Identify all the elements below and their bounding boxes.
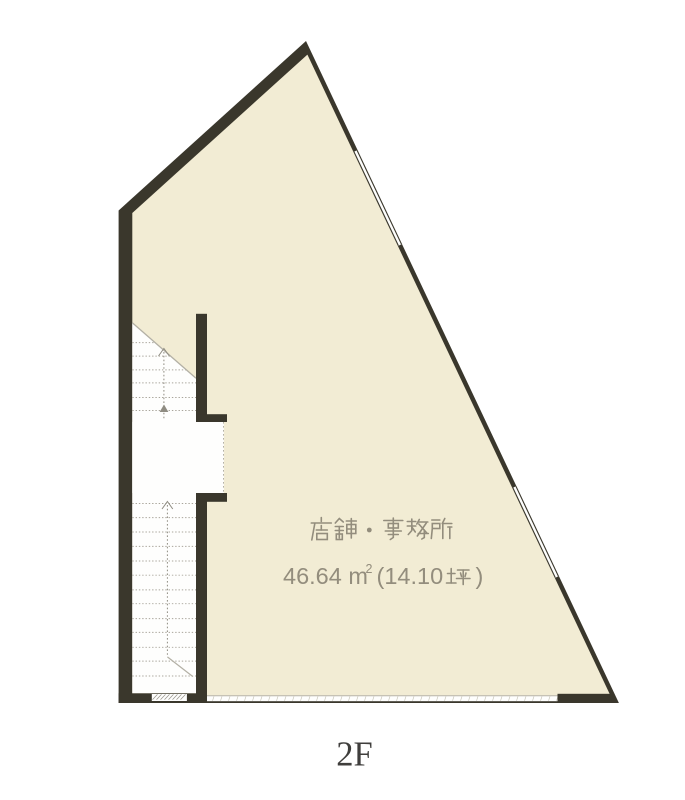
svg-text:): ): [476, 563, 484, 589]
svg-text:(14.10: (14.10: [377, 563, 444, 589]
svg-text:2F: 2F: [336, 736, 372, 774]
svg-text:46.64 m: 46.64 m: [283, 563, 368, 589]
svg-text:2: 2: [366, 562, 373, 576]
